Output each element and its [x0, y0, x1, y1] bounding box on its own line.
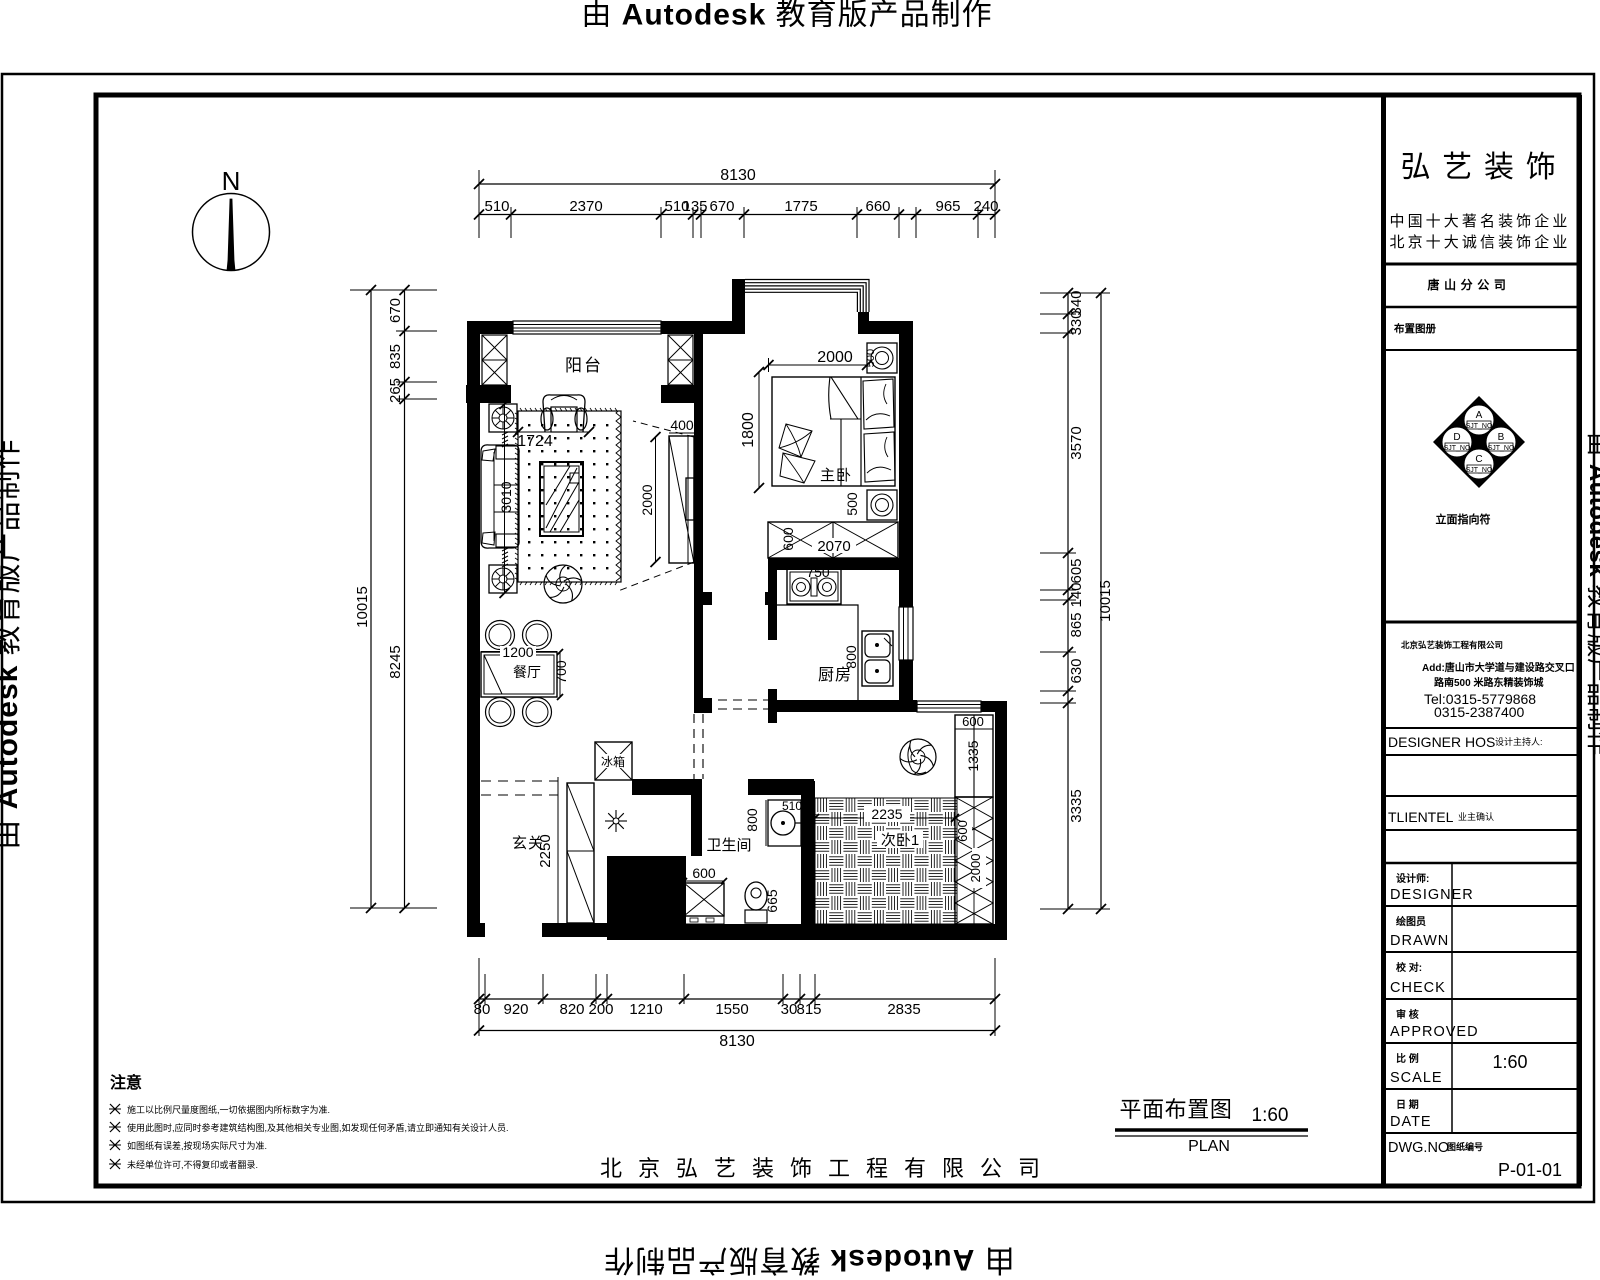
svg-text:10015: 10015	[354, 586, 371, 628]
svg-text:400: 400	[670, 417, 694, 433]
svg-text:600: 600	[692, 865, 716, 881]
svg-text:700: 700	[553, 660, 569, 684]
svg-text:3335: 3335	[1068, 789, 1085, 822]
svg-text:330: 330	[1068, 310, 1085, 335]
svg-text:业主确认: 业主确认	[1458, 811, 1494, 822]
svg-text:500: 500	[865, 349, 877, 367]
svg-text:施工以比例尺量度图纸,一切依据图内所标数字为准.: 施工以比例尺量度图纸,一切依据图内所标数字为准.	[127, 1104, 330, 1115]
svg-text:8245: 8245	[387, 645, 404, 678]
svg-text:日 期: 日 期	[1396, 1098, 1419, 1111]
svg-text:2000: 2000	[639, 484, 655, 515]
svg-text:由 Autodesk 教育版产品制作: 由 Autodesk 教育版产品制作	[1584, 432, 1600, 756]
svg-text:1724: 1724	[517, 433, 553, 450]
svg-text:2235: 2235	[871, 806, 902, 822]
svg-text:注意: 注意	[110, 1073, 142, 1092]
svg-text:设计主持人:: 设计主持人:	[1495, 736, 1543, 747]
svg-text:1:60: 1:60	[1492, 1052, 1527, 1072]
svg-text:800: 800	[843, 645, 859, 669]
svg-text:使用此图时,应同时参考建筑结构图,及其他相关专业图,如发现任: 使用此图时,应同时参考建筑结构图,及其他相关专业图,如发现任何矛盾,请立即通知有…	[127, 1122, 509, 1133]
svg-text:审 核: 审 核	[1396, 1008, 1419, 1021]
svg-text:670: 670	[709, 198, 734, 215]
svg-text:北京弘艺装饰工程有限公司: 北京弘艺装饰工程有限公司	[1401, 640, 1503, 650]
svg-text:未经单位许可,不得复印或者翻录.: 未经单位许可,不得复印或者翻录.	[127, 1159, 258, 1170]
svg-text:820: 820	[559, 1001, 584, 1018]
svg-text:餐厅: 餐厅	[513, 664, 541, 680]
svg-text:主卧: 主卧	[820, 467, 852, 484]
svg-text:665: 665	[764, 889, 780, 913]
svg-text:卫生间: 卫生间	[706, 837, 751, 854]
svg-text:1210: 1210	[629, 1001, 662, 1018]
svg-text:135: 135	[682, 198, 707, 215]
svg-text:510: 510	[782, 799, 802, 813]
svg-text:CHECK: CHECK	[1390, 980, 1446, 996]
svg-text:由 Autodesk 教育版产品制作: 由 Autodesk 教育版产品制作	[0, 438, 24, 849]
svg-text:P-01-01: P-01-01	[1498, 1160, 1562, 1180]
svg-text:1:60: 1:60	[1252, 1105, 1289, 1126]
svg-text:SJT_NO: SJT_NO	[1466, 467, 1493, 474]
svg-text:DESIGNER HOS: DESIGNER HOS	[1388, 734, 1495, 750]
svg-text:图纸编号: 图纸编号	[1447, 1141, 1483, 1152]
svg-text:920: 920	[503, 1001, 528, 1018]
svg-text:DESIGNER: DESIGNER	[1390, 887, 1474, 903]
svg-text:A: A	[1476, 410, 1483, 421]
svg-text:C: C	[1475, 454, 1482, 465]
svg-text:600: 600	[780, 527, 796, 551]
svg-text:265: 265	[387, 378, 404, 403]
svg-text:3010: 3010	[498, 481, 514, 512]
svg-text:由 Autodesk 教育版产品制作: 由 Autodesk 教育版产品制作	[581, 0, 992, 32]
svg-text:次卧1: 次卧1	[881, 832, 919, 849]
svg-text:1800: 1800	[740, 412, 757, 448]
svg-text:B: B	[1498, 432, 1505, 443]
svg-text:PLAN: PLAN	[1188, 1138, 1230, 1155]
svg-text:TLIENTEL: TLIENTEL	[1388, 809, 1454, 825]
svg-text:如图纸有误差,按现场实际尺寸为准.: 如图纸有误差,按现场实际尺寸为准.	[127, 1140, 267, 1151]
svg-text:1335: 1335	[965, 740, 981, 771]
svg-text:240: 240	[973, 198, 998, 215]
svg-text:3570: 3570	[1068, 426, 1085, 459]
svg-text:2000: 2000	[968, 854, 983, 883]
svg-text:815: 815	[796, 1001, 821, 1018]
svg-text:DWG.NO: DWG.NO	[1388, 1140, 1449, 1156]
svg-text:比 例: 比 例	[1396, 1052, 1419, 1065]
svg-text:校 对:: 校 对:	[1396, 961, 1422, 974]
svg-text:DRAWN: DRAWN	[1390, 933, 1449, 949]
svg-text:80: 80	[474, 1001, 491, 1018]
svg-text:阳台: 阳台	[565, 356, 603, 375]
svg-text:N: N	[222, 166, 241, 196]
svg-text:10015: 10015	[1097, 580, 1114, 622]
svg-text:800: 800	[744, 808, 760, 832]
svg-text:2370: 2370	[569, 198, 602, 215]
svg-text:Add:唐山市大学道与建设路交叉口: Add:唐山市大学道与建设路交叉口	[1422, 661, 1575, 674]
svg-text:路南500 米路东精装饰城: 路南500 米路东精装饰城	[1434, 676, 1543, 689]
svg-text:600: 600	[955, 820, 970, 842]
svg-text:2000: 2000	[817, 349, 853, 366]
svg-text:立面指向符: 立面指向符	[1436, 512, 1491, 526]
svg-text:2070: 2070	[817, 538, 850, 555]
svg-text:30: 30	[781, 1001, 798, 1018]
svg-text:500: 500	[844, 492, 860, 516]
svg-text:中国十大著名装饰企业: 中国十大著名装饰企业	[1389, 212, 1570, 230]
svg-text:835: 835	[387, 344, 404, 369]
svg-text:630: 630	[1068, 658, 1085, 683]
svg-text:140: 140	[1068, 582, 1085, 607]
svg-text:北京弘艺装饰工程有限公司: 北京弘艺装饰工程有限公司	[600, 1156, 1056, 1181]
svg-text:600: 600	[962, 714, 984, 729]
svg-text:冰箱: 冰箱	[601, 754, 625, 769]
svg-text:平面布置图: 平面布置图	[1119, 1097, 1232, 1122]
svg-text:弘艺装饰: 弘艺装饰	[1401, 151, 1568, 184]
svg-text:设计师:: 设计师:	[1396, 872, 1429, 885]
svg-text:布置图册: 布置图册	[1394, 322, 1436, 335]
svg-text:200: 200	[588, 1001, 613, 1018]
svg-text:670: 670	[387, 298, 404, 323]
svg-text:SJT_NO: SJT_NO	[1488, 445, 1515, 452]
svg-text:北京十大诚信装饰企业: 北京十大诚信装饰企业	[1389, 233, 1570, 251]
svg-text:1550: 1550	[715, 1001, 748, 1018]
svg-text:965: 965	[935, 198, 960, 215]
svg-text:2835: 2835	[887, 1001, 920, 1018]
svg-text:8130: 8130	[720, 167, 756, 184]
svg-text:唐山分公司: 唐山分公司	[1427, 277, 1510, 292]
svg-text:DATE: DATE	[1390, 1114, 1432, 1130]
svg-text:玄关: 玄关	[512, 835, 544, 852]
svg-text:SJT_NO: SJT_NO	[1466, 423, 1493, 430]
svg-text:绘图员: 绘图员	[1396, 915, 1426, 928]
svg-text:510: 510	[484, 198, 509, 215]
svg-text:1775: 1775	[784, 198, 817, 215]
svg-text:1200: 1200	[502, 644, 533, 660]
svg-text:605: 605	[1068, 558, 1085, 583]
svg-text:由 Autodesk 教育版产品制作: 由 Autodesk 教育版产品制作	[603, 1243, 1014, 1276]
svg-text:D: D	[1453, 432, 1460, 443]
svg-text:0315-2387400: 0315-2387400	[1434, 704, 1525, 720]
svg-text:SJT_NO: SJT_NO	[1444, 445, 1471, 452]
svg-text:SCALE: SCALE	[1390, 1070, 1443, 1086]
svg-text:865: 865	[1068, 612, 1085, 637]
svg-text:APPROVED: APPROVED	[1390, 1024, 1479, 1040]
svg-text:8130: 8130	[719, 1033, 755, 1050]
svg-text:660: 660	[865, 198, 890, 215]
